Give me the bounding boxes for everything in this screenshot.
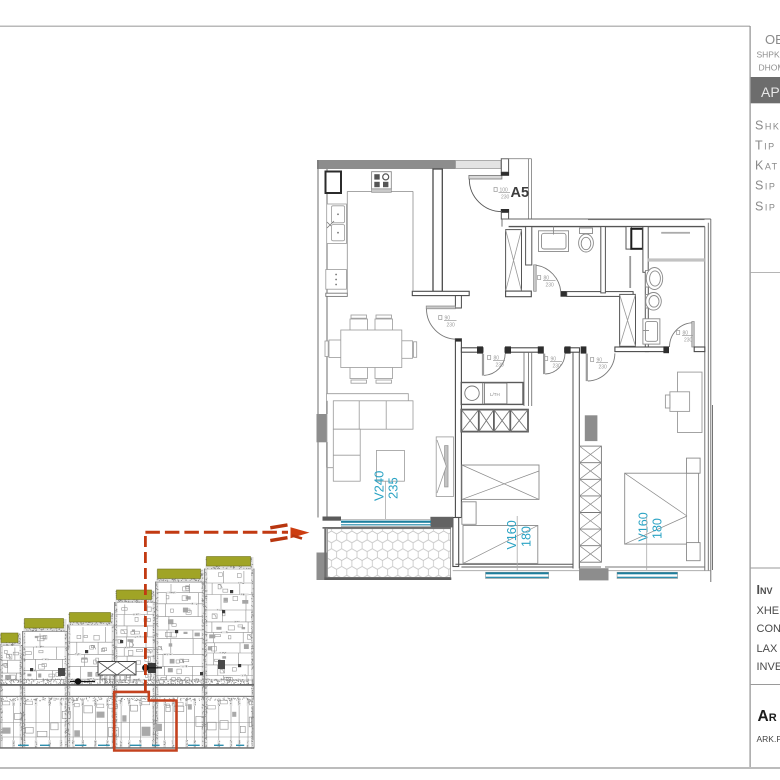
svg-text:A5: A5: [511, 185, 530, 201]
svg-text:180: 180: [651, 518, 665, 539]
svg-text:ARK.P: ARK.P: [757, 734, 780, 744]
svg-text:Shk: Shk: [755, 119, 780, 133]
svg-text:230: 230: [546, 283, 555, 289]
svg-text:230: 230: [684, 338, 693, 344]
svg-text:Kat: Kat: [755, 159, 779, 173]
svg-text:AP: AP: [761, 84, 780, 100]
svg-text:V240: V240: [372, 471, 387, 501]
svg-text:OBJEKT: OBJEKT: [765, 32, 780, 47]
svg-text:CON: CON: [757, 623, 780, 635]
svg-text:Tip: Tip: [755, 139, 776, 153]
svg-text:Sip: Sip: [755, 179, 776, 193]
svg-text:235: 235: [386, 477, 401, 499]
svg-text:LAX: LAX: [757, 643, 778, 655]
svg-text:180: 180: [520, 526, 534, 547]
svg-text:Inv: Inv: [757, 583, 773, 597]
svg-text:Ar: Ar: [758, 708, 777, 725]
svg-text:230: 230: [599, 365, 608, 371]
svg-text:Sip: Sip: [755, 200, 776, 214]
svg-text:DHOME: DHOME: [759, 63, 780, 73]
svg-text:INVE: INVE: [757, 661, 780, 673]
svg-text:230: 230: [496, 363, 505, 369]
svg-text:230: 230: [447, 323, 456, 329]
svg-text:V160: V160: [637, 512, 651, 541]
svg-text:SHPK "N: SHPK "N: [757, 50, 780, 60]
svg-text:230: 230: [553, 364, 562, 370]
svg-text:L/TH: L/TH: [490, 392, 500, 397]
svg-text:230: 230: [501, 195, 510, 201]
svg-text:XHE: XHE: [757, 605, 780, 617]
